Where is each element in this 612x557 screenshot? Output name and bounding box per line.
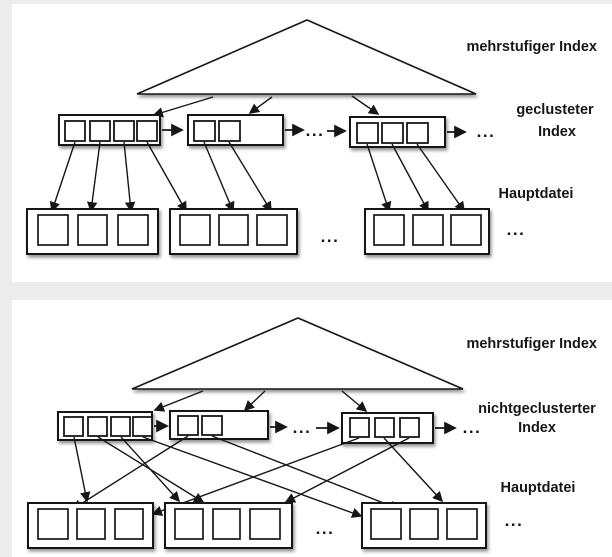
file-block-2 (165, 503, 292, 548)
ellipsis: ... (477, 122, 496, 141)
file-block-3 (362, 503, 486, 548)
index-entry (133, 417, 152, 436)
index-entry (194, 121, 215, 141)
index-diagrams-canvas: ... ... (0, 0, 612, 557)
index-entry (357, 123, 378, 143)
index-entry (202, 416, 222, 435)
label-multilevel-index: mehrstufiger Index (466, 39, 597, 55)
record-square (410, 509, 438, 539)
index-entry (375, 418, 394, 437)
file-block-1 (27, 209, 158, 254)
record-square (118, 215, 148, 245)
record-square (115, 509, 143, 539)
record-square (213, 509, 240, 539)
index-entry (137, 121, 157, 141)
record-square (371, 509, 401, 539)
index-block-3 (350, 117, 445, 147)
ellipsis: ... (293, 418, 312, 437)
record-square (38, 509, 68, 539)
ellipsis: ... (321, 227, 340, 246)
record-square (250, 509, 280, 539)
index-entry (90, 121, 110, 141)
record-square (180, 215, 210, 245)
record-square (219, 215, 248, 245)
index-entry (178, 416, 198, 435)
label-index-type-line2: Index (518, 420, 556, 436)
file-block-1 (28, 503, 153, 548)
ellipsis: ... (507, 220, 526, 239)
record-square (175, 509, 203, 539)
record-square (451, 215, 481, 245)
ellipsis: ... (306, 121, 325, 140)
index-entry (382, 123, 403, 143)
label-main-file: Hauptdatei (499, 186, 574, 202)
ellipsis: ... (505, 511, 524, 530)
label-multilevel-index: mehrstufiger Index (466, 336, 597, 352)
index-entry (64, 417, 83, 436)
record-square (257, 215, 287, 245)
index-block-1 (58, 412, 152, 440)
label-index-type-line2: Index (538, 124, 576, 140)
index-entry (88, 417, 107, 436)
index-entry (407, 123, 428, 143)
ellipsis: ... (463, 418, 482, 437)
file-block-2 (170, 209, 297, 254)
file-block-3 (365, 209, 489, 254)
index-entry (219, 121, 240, 141)
label-index-type-line1: geclusteter (516, 102, 594, 118)
record-square (447, 509, 477, 539)
index-block-1 (59, 115, 160, 145)
ellipsis: ... (316, 519, 335, 538)
index-block-2 (188, 115, 283, 145)
record-square (374, 215, 404, 245)
index-entry (111, 417, 130, 436)
index-block-2 (170, 411, 268, 439)
index-entry (114, 121, 134, 141)
label-main-file: Hauptdatei (501, 480, 576, 496)
slide-stage: ... ... (0, 0, 612, 557)
index-entry (65, 121, 85, 141)
record-square (77, 509, 105, 539)
index-entry (350, 418, 369, 437)
record-square (413, 215, 443, 245)
record-square (38, 215, 68, 245)
label-index-type-line1: nichtgeclusterter (478, 401, 596, 417)
index-entry (400, 418, 419, 437)
record-square (78, 215, 107, 245)
